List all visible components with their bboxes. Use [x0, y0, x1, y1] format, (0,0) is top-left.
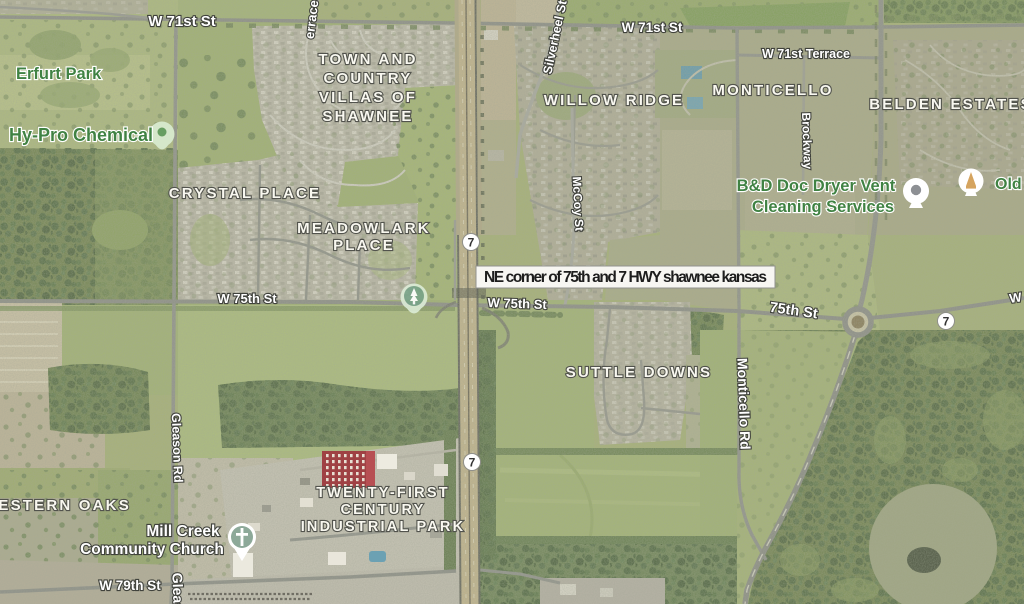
svg-text:W 7: W 7 [1008, 288, 1024, 306]
svg-text:BELDEN ESTATES: BELDEN ESTATES [869, 96, 1024, 113]
svg-text:7: 7 [468, 236, 475, 250]
svg-text:TOWN AND: TOWN AND [318, 51, 417, 68]
svg-text:McCoy St: McCoy St [570, 176, 587, 231]
svg-text:Cleaning Services: Cleaning Services [752, 198, 894, 216]
svg-text:COUNTRY: COUNTRY [323, 70, 412, 87]
svg-text:W 75th St: W 75th St [217, 291, 277, 306]
svg-text:Community Church: Community Church [80, 541, 224, 558]
svg-text:7: 7 [943, 315, 950, 329]
svg-text:W 71st St: W 71st St [148, 13, 216, 30]
svg-text:7: 7 [469, 456, 476, 470]
svg-text:W 75th St: W 75th St [487, 295, 547, 312]
svg-text:W 71st Terrace: W 71st Terrace [762, 47, 850, 61]
svg-text:Old: Old [995, 176, 1022, 193]
svg-text:WESTERN OAKS: WESTERN OAKS [0, 497, 131, 514]
svg-text:PLACE: PLACE [333, 237, 395, 254]
svg-text:Mill Creek: Mill Creek [146, 523, 220, 540]
svg-text:W 71st St: W 71st St [622, 20, 683, 35]
svg-text:Hy-Pro Chemical: Hy-Pro Chemical [9, 125, 153, 145]
svg-text:CRYSTAL PLACE: CRYSTAL PLACE [169, 185, 322, 202]
svg-text:MONTICELLO: MONTICELLO [712, 82, 833, 99]
svg-text:VILLAS OF: VILLAS OF [319, 89, 417, 106]
svg-text:TWENTY-FIRST: TWENTY-FIRST [316, 485, 450, 501]
svg-text:Gleas: Gleas [169, 572, 186, 604]
svg-text:WILLOW RIDGE: WILLOW RIDGE [544, 92, 685, 109]
svg-text:MEADOWLARK: MEADOWLARK [297, 220, 431, 237]
svg-text:SUTTLE DOWNS: SUTTLE DOWNS [566, 364, 712, 381]
svg-text:NE corner of 75th and 7 HWY sh: NE corner of 75th and 7 HWY shawnee kans… [484, 269, 767, 286]
svg-text:Gleason Rd: Gleason Rd [169, 413, 185, 483]
svg-text:Brockway: Brockway [799, 112, 815, 169]
svg-text:Monticello Rd: Monticello Rd [734, 358, 753, 450]
svg-text:SHAWNEE: SHAWNEE [322, 108, 413, 125]
svg-text:CENTURY: CENTURY [341, 502, 426, 518]
svg-text:W 79th St: W 79th St [99, 578, 161, 593]
svg-text:Erfurt Park: Erfurt Park [16, 65, 102, 83]
svg-text:B&D Doc Dryer Vent: B&D Doc Dryer Vent [737, 177, 896, 195]
svg-text:INDUSTRIAL PARK: INDUSTRIAL PARK [301, 519, 466, 535]
